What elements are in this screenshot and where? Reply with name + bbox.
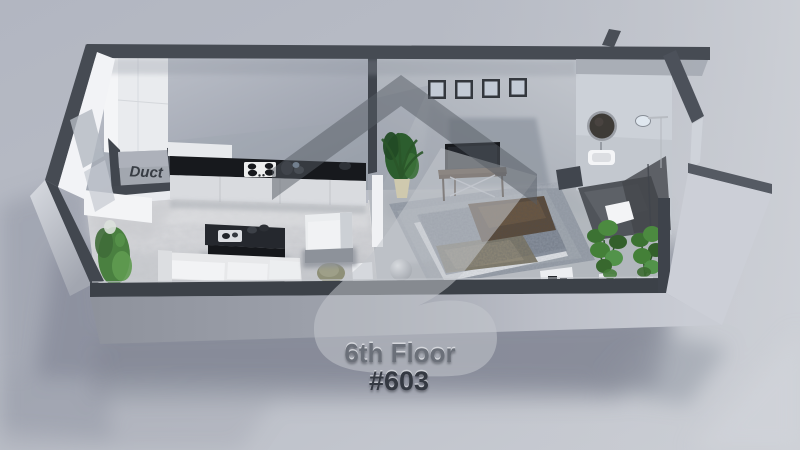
svg-text:6th Floor: 6th Floor — [344, 338, 455, 368]
svg-text:Duct: Duct — [129, 163, 164, 181]
svg-text:#603: #603 — [369, 366, 429, 396]
